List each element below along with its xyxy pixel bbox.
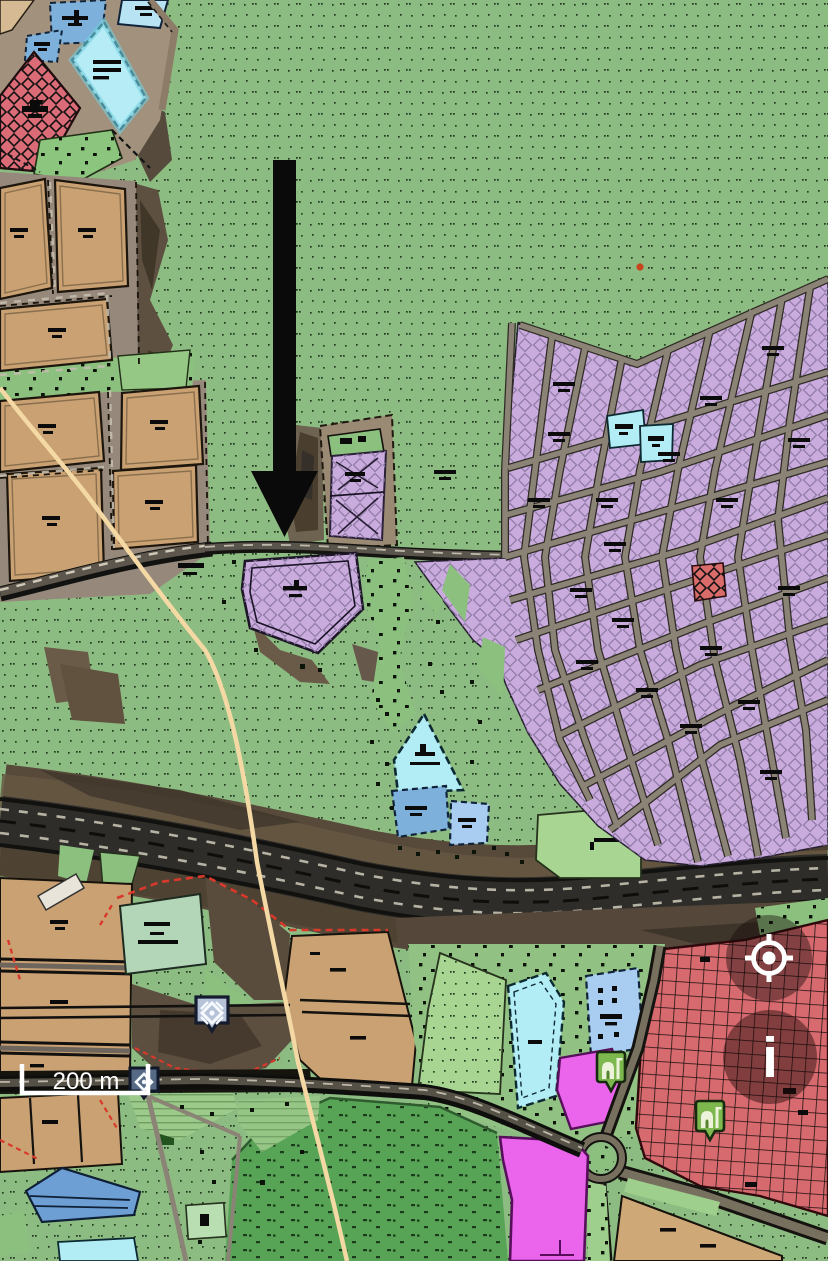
svg-text:i: i (762, 1026, 778, 1090)
svg-text:200 m: 200 m (53, 1068, 120, 1095)
